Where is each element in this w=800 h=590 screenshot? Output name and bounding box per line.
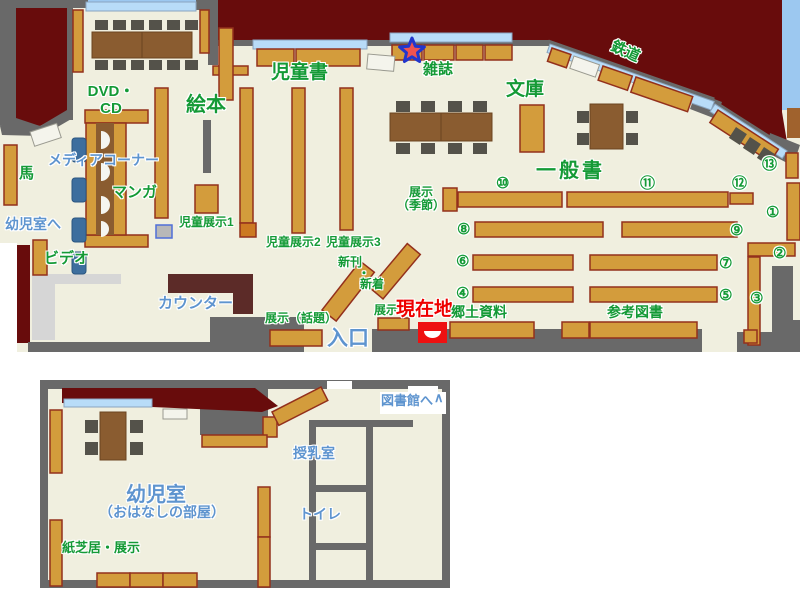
label-ehon: 絵本 <box>186 94 226 116</box>
label-to-yojishitsu: 幼児室へ <box>5 217 61 233</box>
shelf-number-10: ⑩ <box>496 176 509 193</box>
shelf-end <box>787 108 800 138</box>
label-media-corner: メディアコーナー <box>48 153 159 169</box>
shelf-number-7: ⑦ <box>719 256 732 273</box>
shelf-number-4: ④ <box>456 286 469 303</box>
label-jido-tenji1: 児童展示1 <box>179 216 234 229</box>
shelf-number-8: ⑧ <box>457 222 470 239</box>
label-genzaichi: 現在地 <box>396 299 453 320</box>
partition <box>203 120 211 173</box>
label-bunko: 文庫 <box>506 79 544 100</box>
lower-map <box>40 380 450 588</box>
closed-area-left <box>13 4 67 126</box>
label-junyushitsu: 授乳室 <box>293 446 335 462</box>
up-arrow-icon: ∧ <box>434 391 444 406</box>
label-counter: カウンター <box>158 296 233 313</box>
label-shinchaku: 新着 <box>360 278 384 291</box>
label-kyodo-shiryo: 郷土資料 <box>451 305 507 321</box>
shelf-number-11: ⑪ <box>640 176 655 193</box>
kiosk <box>156 225 172 238</box>
label-jido-tenji3: 児童展示3 <box>326 236 381 249</box>
shelf-number-6: ⑥ <box>456 254 469 271</box>
label-tenji: 展示 <box>374 304 398 317</box>
shelf-number-13: ⑬ <box>762 157 777 174</box>
shelf-number-5: ⑤ <box>719 288 732 305</box>
label-manga: マンガ <box>112 185 157 202</box>
label-tenji-wadai: 展示（話題） <box>265 312 337 325</box>
shelf-number-3: ③ <box>750 291 763 308</box>
current-location-marker <box>418 322 447 343</box>
label-ippansho: 一般書 <box>536 160 605 182</box>
label-toire: トイレ <box>299 507 341 523</box>
shelf-number-12: ⑫ <box>732 176 747 193</box>
closed-wall-left-lower <box>17 245 30 343</box>
sky-strip-right <box>782 0 800 110</box>
label-jidosho: 児童書 <box>271 62 328 83</box>
label-yojishitsu-sub: （おはなしの部屋） <box>99 505 225 521</box>
shelf-number-1: ① <box>766 205 779 222</box>
label-uma: 馬 <box>19 166 34 183</box>
window <box>64 399 152 407</box>
label-jido-tenji2: 児童展示2 <box>266 236 321 249</box>
label-dvd-cd: DVD・CD <box>84 84 138 118</box>
label-zasshi: 雑誌 <box>423 62 453 79</box>
shelf-number-9: ⑨ <box>730 223 743 240</box>
display-stand <box>240 223 256 237</box>
label-video: ビデオ <box>44 251 89 268</box>
library-floor-map: DVD・CD 絵本 児童書 雑誌 文庫 鉄道 一般書 メディアコーナー マンガ … <box>0 0 800 590</box>
label-sanko-tosho: 参考図書 <box>607 305 663 321</box>
outside-white <box>0 243 17 352</box>
label-kamishibai: 紙芝居・展示 <box>62 541 140 556</box>
label-to-toshokan: 図書館へ∧ <box>381 394 444 409</box>
label-tenji-kisetsu: 展示（季節） <box>397 186 445 213</box>
wall-notch <box>327 381 352 389</box>
white-rack <box>163 409 187 419</box>
shelf-number-2: ② <box>773 246 786 263</box>
label-iriguchi: 入口 <box>327 327 369 351</box>
